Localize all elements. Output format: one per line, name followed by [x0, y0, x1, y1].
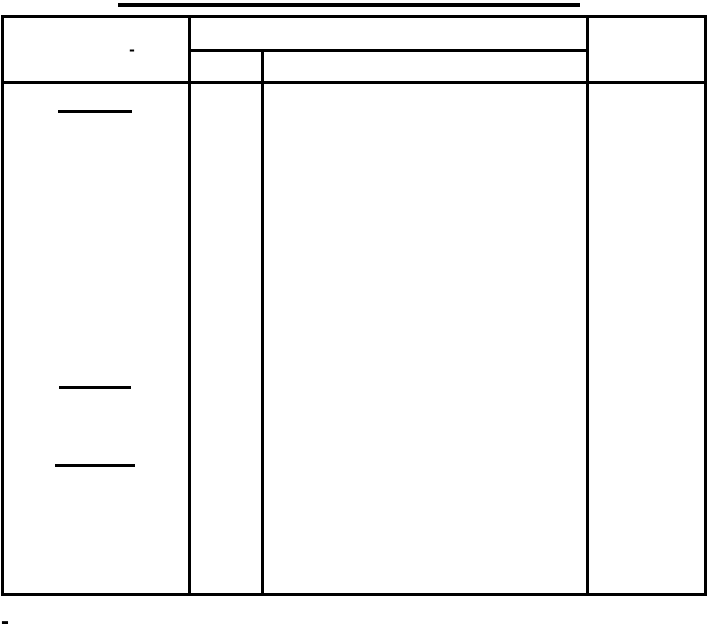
- left-column-divider: [188, 18, 191, 593]
- title-underline: [118, 3, 580, 7]
- header-bottom-rule: [4, 81, 704, 84]
- right-column-divider: [586, 18, 589, 593]
- blank-field-underline-2: [59, 386, 131, 389]
- form-table: -: [1, 15, 707, 596]
- sub-column-divider: [261, 49, 264, 593]
- header-sub-rule: [188, 49, 589, 52]
- blank-field-underline-3: [55, 464, 135, 467]
- header-left-cell-dash: -: [114, 38, 150, 60]
- blank-field-underline-1: [58, 110, 132, 113]
- document-page: - -: [0, 0, 711, 628]
- footnote-dash: -: [1, 610, 9, 628]
